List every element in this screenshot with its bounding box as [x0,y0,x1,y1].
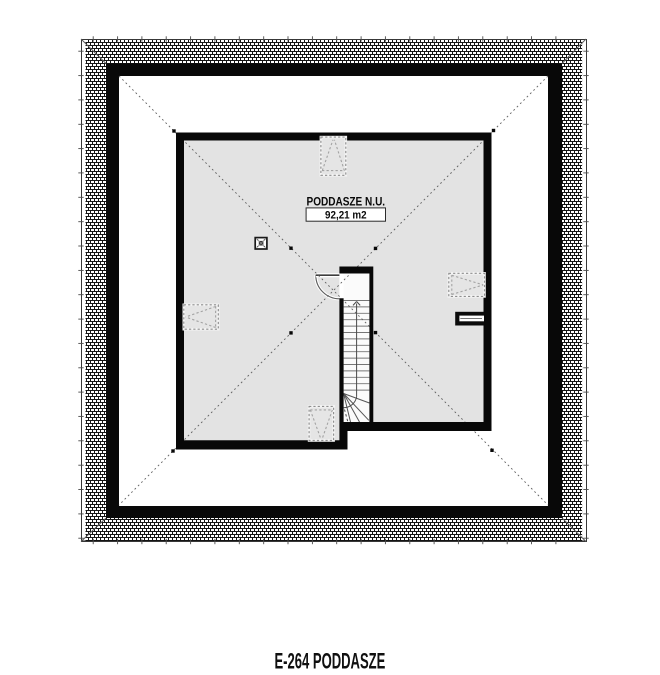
svg-text:E-264 PODDASZE: E-264 PODDASZE [274,649,385,674]
svg-text:92,21 m2: 92,21 m2 [325,210,367,222]
svg-text:PODDASZE N.U.: PODDASZE N.U. [307,194,386,208]
